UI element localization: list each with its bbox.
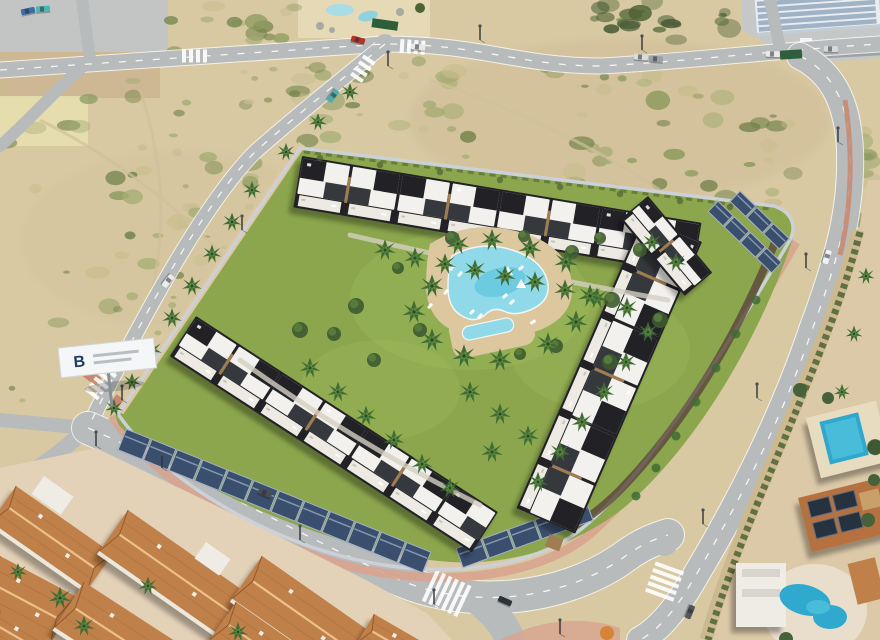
construction-site xyxy=(298,0,430,38)
car xyxy=(824,46,838,54)
pool-under-construction xyxy=(326,4,354,16)
green-road-sign xyxy=(780,49,803,60)
orange-tree xyxy=(600,626,614,640)
car xyxy=(36,5,51,14)
billboard-logo: B xyxy=(73,353,86,371)
car xyxy=(649,56,663,64)
car xyxy=(766,51,780,59)
aerial-photo-canvas: B xyxy=(0,0,880,640)
car xyxy=(634,54,648,62)
road-stub-north-a xyxy=(82,0,90,58)
aerial-photo: B xyxy=(0,0,880,640)
car xyxy=(411,43,426,52)
